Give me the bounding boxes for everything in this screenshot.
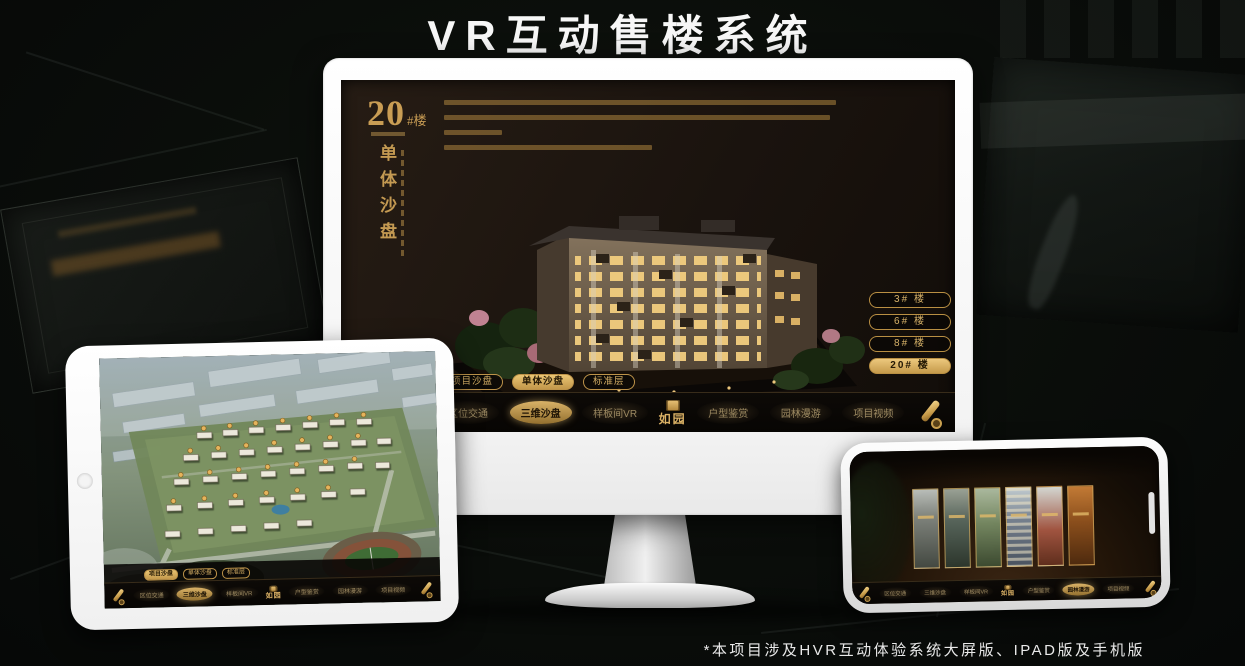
subtab-standard-floor[interactable]: 标准层	[222, 567, 250, 579]
gallery-panel-interior[interactable]	[943, 488, 971, 569]
subtab-single-sandtable[interactable]: 单体沙盘	[512, 374, 574, 390]
brand-logo-text: 如园	[266, 592, 282, 599]
gallery-panel-garden[interactable]	[974, 487, 1002, 568]
scroll-menu-icon-right[interactable]	[1142, 580, 1157, 595]
nav-3d-sandtable[interactable]: 三维沙盘	[919, 586, 951, 599]
subtab-project-sandtable[interactable]: 项目沙盘	[144, 569, 178, 581]
scroll-menu-icon-left[interactable]	[856, 586, 871, 601]
nav-3d-sandtable[interactable]: 三维沙盘	[510, 401, 572, 424]
nav-unit-plans[interactable]: 户型鉴赏	[289, 585, 325, 599]
subtab-standard-floor[interactable]: 标准层	[583, 374, 635, 390]
phone-device: 区位交通 三维沙盘 样板间VR 如园 户型鉴赏 园林漫游 项目视频	[840, 437, 1170, 614]
seal-icon	[666, 400, 680, 411]
bg-photo-river	[1019, 191, 1088, 312]
scroll-curl	[931, 418, 942, 429]
poster-canvas: VR互动售楼系统 20#楼 单体沙盘	[0, 0, 1245, 666]
phone-speaker-pill	[1148, 492, 1155, 534]
nav-project-video[interactable]: 项目视频	[1102, 582, 1134, 595]
nav-showroom-vr[interactable]: 样板间VR	[220, 586, 259, 600]
seal-icon	[269, 585, 277, 591]
description-line	[444, 100, 836, 105]
phone-screen: 区位交通 三维沙盘 样板间VR 如园 户型鉴赏 园林漫游 项目视频	[849, 446, 1161, 604]
panel-caption	[918, 515, 934, 518]
nav-garden-roam[interactable]: 园林漫游	[332, 584, 368, 598]
tablet-home-button	[77, 473, 93, 489]
tablet-screen: 项目沙盘 单体沙盘 标准层 区位交通 三维沙盘 样板间VR 如园 户型鉴赏 园林…	[99, 351, 441, 609]
scroll-curl	[1150, 590, 1156, 596]
building-description-text	[444, 100, 836, 160]
building-number: 20	[367, 93, 405, 133]
floor-button-3[interactable]: 3# 楼	[869, 292, 951, 308]
tablet-device: 项目沙盘 单体沙盘 标准层 区位交通 三维沙盘 样板间VR 如园 户型鉴赏 园林…	[65, 338, 459, 631]
nav-garden-roam[interactable]: 园林漫游	[770, 401, 832, 424]
phone-navbar: 区位交通 三维沙盘 样板间VR 如园 户型鉴赏 园林漫游 项目视频	[852, 576, 1161, 604]
nav-location-traffic[interactable]: 区位交通	[134, 588, 170, 602]
panel-caption	[1011, 514, 1027, 517]
monitor-stand-neck	[604, 514, 696, 586]
scroll-menu-icon-left[interactable]	[110, 588, 126, 604]
sand-table-vertical-title: 单体沙盘	[374, 144, 399, 248]
nav-unit-plans[interactable]: 户型鉴赏	[1023, 583, 1055, 596]
nav-unit-plans[interactable]: 户型鉴赏	[697, 401, 759, 424]
subtab-single-sandtable[interactable]: 单体沙盘	[183, 568, 217, 580]
nav-showroom-vr[interactable]: 样板间VR	[582, 401, 648, 424]
panel-caption	[980, 514, 996, 517]
bg-campus-photo	[976, 57, 1245, 333]
footnote-text: *本项目涉及HVR互动体验系统大屏版、IPAD版及手机版	[704, 639, 1145, 660]
gallery-panel-courtyard[interactable]	[912, 488, 940, 569]
seal-icon	[1004, 584, 1011, 589]
building-number-title: 20#楼	[367, 92, 427, 134]
brand-logo: 如园	[1001, 584, 1015, 596]
scroll-curl	[864, 596, 870, 602]
title-underline	[371, 132, 405, 136]
scroll-curl	[119, 599, 125, 605]
gallery-panels	[912, 485, 1095, 569]
nav-project-video[interactable]: 项目视频	[375, 583, 411, 597]
scroll-curl	[426, 592, 432, 598]
panel-caption	[949, 515, 965, 518]
nav-3d-sandtable[interactable]: 三维沙盘	[177, 587, 213, 601]
bg-photo-road	[980, 92, 1245, 149]
monitor-subtab-group: 项目沙盘 单体沙盘 标准层	[441, 374, 635, 390]
brand-logo-text: 如园	[659, 413, 687, 425]
monitor-stand-base	[545, 583, 755, 608]
panel-caption	[1042, 513, 1058, 516]
page-title: VR互动售楼系统	[0, 2, 1245, 63]
bg-road-line	[26, 51, 264, 130]
floor-button-6[interactable]: 6# 楼	[869, 314, 951, 330]
floor-button-20[interactable]: 20# 楼	[869, 358, 951, 374]
gallery-panel-study[interactable]	[1067, 485, 1095, 566]
vertical-english-caption	[401, 150, 404, 260]
nav-showroom-vr[interactable]: 样板间VR	[959, 585, 993, 598]
floor-button-group: 3# 楼 6# 楼 8# 楼 20# 楼	[869, 292, 951, 380]
nav-location-traffic[interactable]: 区位交通	[879, 586, 911, 599]
brand-logo-text: 如园	[1001, 590, 1015, 596]
brand-logo: 如园	[659, 400, 687, 425]
scroll-menu-icon-right[interactable]	[418, 581, 434, 597]
nav-garden-roam[interactable]: 园林漫游	[1062, 583, 1094, 596]
building-number-unit: #楼	[407, 113, 427, 128]
gallery-panel-autumn[interactable]	[1036, 486, 1064, 567]
brand-logo: 如园	[265, 585, 281, 599]
description-line	[444, 115, 830, 120]
nav-project-video[interactable]: 项目视频	[842, 401, 904, 424]
scroll-menu-icon[interactable]	[915, 398, 945, 428]
floor-button-8[interactable]: 8# 楼	[869, 336, 951, 352]
panel-caption	[1073, 512, 1089, 515]
description-line	[444, 145, 652, 150]
gallery-panel-building[interactable]	[1005, 486, 1033, 567]
description-line	[444, 130, 502, 135]
